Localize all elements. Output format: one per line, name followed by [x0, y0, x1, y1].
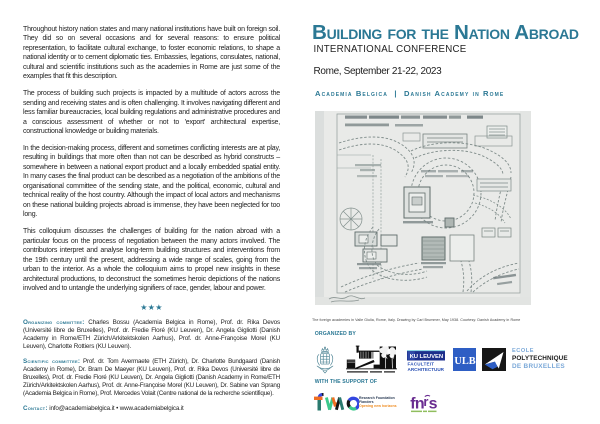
svg-text:s: s: [428, 395, 437, 412]
svg-text:fn: fn: [410, 395, 424, 412]
svg-text:FACULTEIT: FACULTEIT: [408, 361, 435, 366]
svg-text:ARCHITECTUUR: ARCHITECTUUR: [408, 367, 445, 372]
svg-text:ULB: ULB: [454, 356, 475, 367]
svg-text:KU LEUVEN: KU LEUVEN: [410, 354, 444, 360]
